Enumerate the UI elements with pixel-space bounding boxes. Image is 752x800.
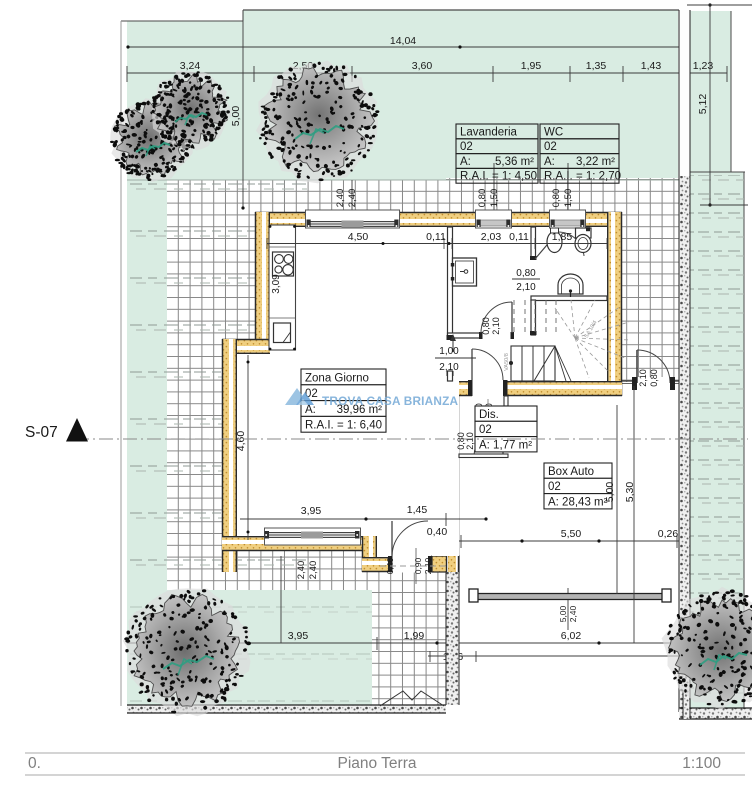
svg-text:2,10: 2,10 (439, 362, 459, 373)
svg-text:1,45: 1,45 (407, 504, 428, 516)
svg-text:1,95: 1,95 (521, 60, 542, 72)
svg-text:TROVA CASA BRIANZA: TROVA CASA BRIANZA (322, 394, 458, 408)
svg-text:0,80: 0,80 (551, 189, 562, 208)
svg-text:2,40: 2,40 (308, 561, 319, 580)
svg-text:0.: 0. (28, 755, 41, 772)
svg-text:5,12: 5,12 (697, 94, 709, 115)
svg-text:2,40: 2,40 (568, 605, 578, 622)
svg-text:0,80: 0,80 (516, 268, 536, 279)
svg-text:A:: A: (460, 156, 471, 168)
svg-text:A:: A: (544, 156, 555, 168)
svg-text:R.A.I. = 1: 4,50: R.A.I. = 1: 4,50 (460, 171, 537, 183)
svg-text:6,02: 6,02 (561, 630, 582, 642)
svg-text:02: 02 (548, 481, 561, 493)
svg-text:1,43: 1,43 (641, 60, 662, 72)
svg-text:2,40: 2,40 (347, 189, 358, 208)
svg-text:02: 02 (460, 141, 473, 153)
svg-text:14,04: 14,04 (390, 35, 416, 47)
svg-text:1,99: 1,99 (404, 630, 425, 642)
svg-text:3,60: 3,60 (412, 60, 433, 72)
svg-text:1,85: 1,85 (552, 231, 573, 243)
svg-text:1:100: 1:100 (682, 755, 721, 772)
svg-text:4,60: 4,60 (235, 431, 247, 452)
svg-text:0,26: 0,26 (658, 528, 679, 540)
svg-text:2,10: 2,10 (491, 317, 501, 335)
svg-text:S-07: S-07 (25, 424, 58, 441)
svg-text:1,35: 1,35 (586, 60, 607, 72)
svg-text:0,11: 0,11 (426, 231, 446, 243)
svg-text:0,40: 0,40 (427, 526, 448, 538)
svg-text:2,03: 2,03 (481, 231, 502, 243)
svg-text:0,80: 0,80 (477, 189, 488, 208)
svg-text:WC: WC (544, 126, 563, 138)
svg-text:5,00: 5,00 (604, 482, 616, 503)
svg-text:A: 28,43 m²: A: 28,43 m² (548, 496, 608, 508)
svg-text:5,36 m²: 5,36 m² (495, 156, 534, 168)
svg-text:5,00: 5,00 (558, 605, 568, 622)
svg-text:2,10: 2,10 (465, 432, 475, 450)
svg-text:3,22 m²: 3,22 m² (576, 156, 615, 168)
svg-text:Lavanderia: Lavanderia (460, 126, 518, 138)
svg-text:2,40: 2,40 (335, 189, 346, 208)
svg-text:R.A.I. = 1: 6,40: R.A.I. = 1: 6,40 (305, 420, 382, 432)
svg-text:3,24: 3,24 (180, 60, 201, 72)
svg-text:1,50: 1,50 (563, 189, 574, 208)
svg-text:0,80: 0,80 (481, 317, 491, 335)
svg-text:A: 1,77 m²: A: 1,77 m² (479, 439, 532, 451)
svg-text:1,00: 1,00 (439, 346, 459, 357)
svg-text:3,09: 3,09 (271, 274, 282, 294)
svg-text:5,50: 5,50 (561, 528, 582, 540)
svg-text:02: 02 (544, 141, 557, 153)
svg-text:3,95: 3,95 (301, 505, 322, 517)
svg-text:4,50: 4,50 (348, 231, 369, 243)
svg-text:02: 02 (479, 424, 492, 436)
svg-text:5,00: 5,00 (230, 106, 242, 127)
svg-text:5,30: 5,30 (624, 482, 636, 503)
svg-text:2,10: 2,10 (638, 369, 648, 387)
svg-text:2,10: 2,10 (516, 282, 536, 293)
svg-text:Zona Giorno: Zona Giorno (305, 372, 369, 384)
svg-text:Box Auto: Box Auto (548, 466, 594, 478)
svg-text:Dis.: Dis. (479, 409, 499, 421)
svg-text:0,11: 0,11 (509, 231, 529, 243)
svg-text:0,80: 0,80 (649, 369, 659, 387)
svg-text:VA50/8: VA50/8 (504, 353, 510, 371)
svg-text:Piano Terra: Piano Terra (338, 755, 417, 772)
svg-text:R.A.I. = 1: 2,70: R.A.I. = 1: 2,70 (544, 171, 621, 183)
svg-text:A:: A: (305, 404, 316, 416)
svg-text:3,95: 3,95 (288, 630, 309, 642)
svg-text:2,40: 2,40 (296, 561, 307, 580)
svg-text:1,50: 1,50 (489, 189, 500, 208)
